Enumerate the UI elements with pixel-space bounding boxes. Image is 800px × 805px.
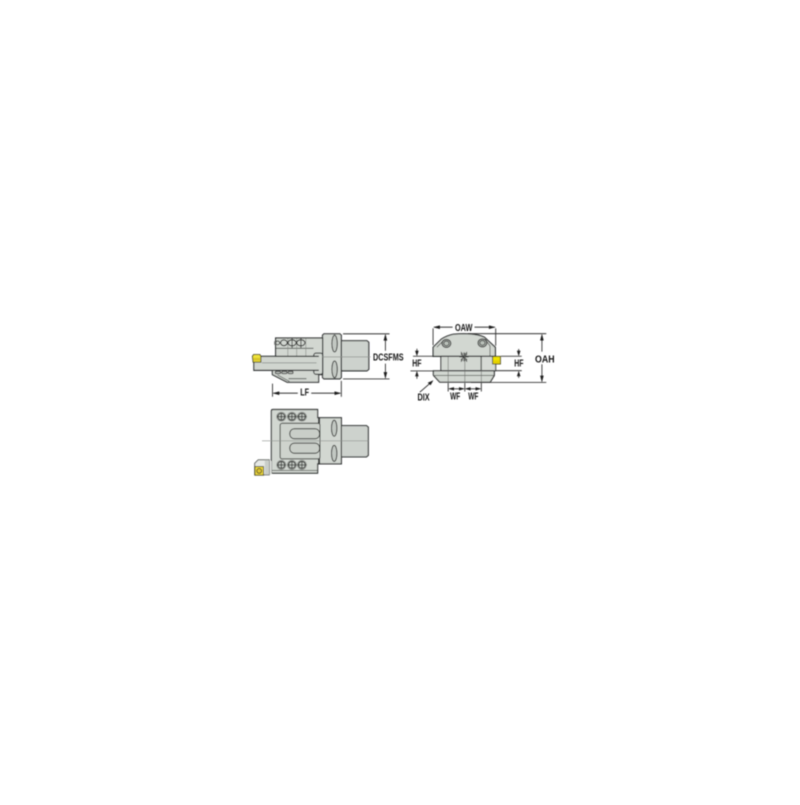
svg-text:HF: HF [412,358,421,369]
svg-text:OAH: OAH [535,354,555,365]
svg-text:DIX: DIX [418,393,430,404]
svg-text:HF: HF [514,359,523,370]
svg-text:OAW: OAW [455,323,473,334]
svg-text:WF: WF [450,391,460,402]
svg-text:LF: LF [300,388,309,399]
svg-text:WF: WF [468,391,478,402]
svg-text:DCSFMS: DCSFMS [373,352,404,363]
